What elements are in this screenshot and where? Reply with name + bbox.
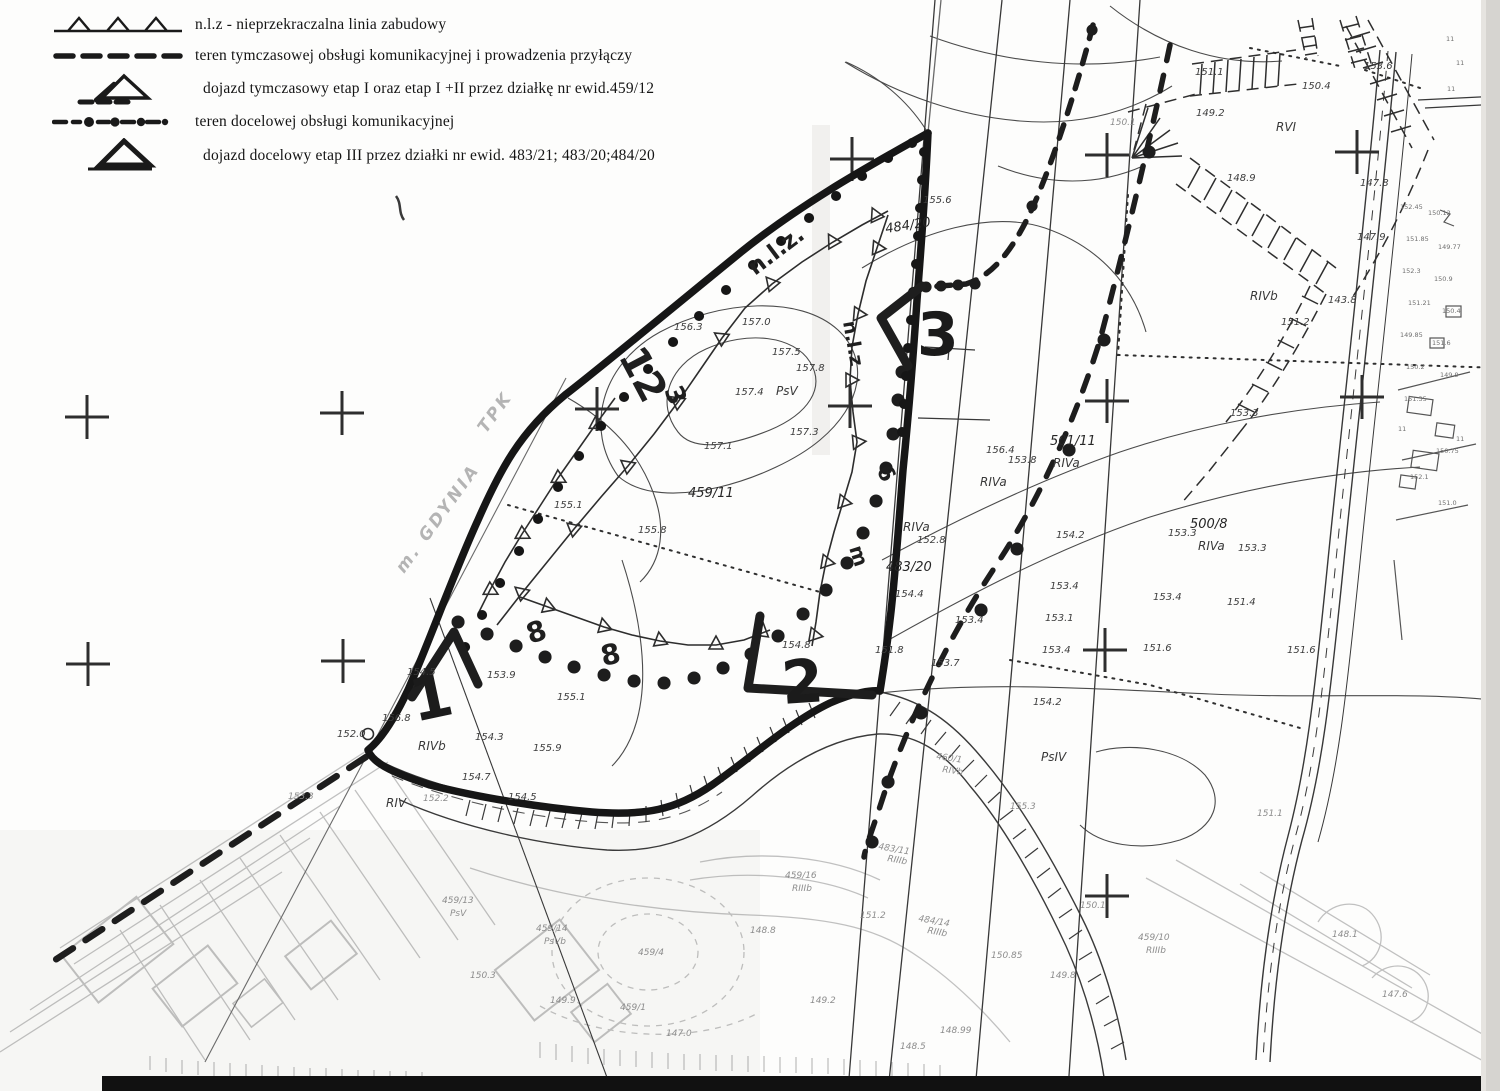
map-label: 151.6 (1432, 339, 1451, 347)
map-label: 157.5 (772, 347, 801, 358)
map-label: 154.8 (782, 640, 811, 651)
legend-item-label: dojazd docelowy etap III przez działki n… (203, 147, 655, 165)
map-label: 152.2 (423, 794, 449, 804)
map-label: 483/20 (886, 560, 932, 575)
map-label: 152.1 (1410, 473, 1429, 481)
map-label: 150.9 (1434, 275, 1453, 283)
map-label: 157.4 (735, 387, 764, 398)
map-label: 2 (779, 646, 826, 719)
map-label: 151.21 (1408, 299, 1431, 307)
map-label: 154.4 (895, 589, 924, 600)
map-label: 153.4 (1050, 581, 1079, 592)
map-label: 154.5 (508, 792, 537, 803)
map-label: 155.3 (1010, 802, 1036, 812)
map-label: 155.1 (557, 692, 586, 703)
map-label: 152.45 (1400, 203, 1423, 211)
map-label: 153.3 (1168, 528, 1197, 539)
map-label: 149.9 (1440, 371, 1459, 379)
legend-item-nlz: n.l.z - nieprzekraczalna linia zabudowy (52, 10, 732, 40)
map-label: 154.2 (1056, 530, 1085, 541)
nlz-line-symbol-icon (52, 10, 187, 40)
map-label: 148.5 (900, 1042, 926, 1052)
map-label: 156.3 (674, 322, 703, 333)
map-label: 151.35 (1404, 395, 1427, 403)
map-label: 11 (1456, 435, 1464, 443)
map-label: 155.6 (923, 195, 952, 206)
legend-item-label: dojazd tymczasowy etap I oraz etap I +II… (203, 80, 654, 98)
map-label: 149.2 (810, 996, 836, 1006)
map-label: 149.77 (1438, 243, 1461, 251)
map-label: RIVa (903, 520, 930, 534)
map-label: PsIV (1041, 750, 1067, 764)
map-label: 153.3 (288, 792, 314, 802)
map-label: 150.12 (1428, 209, 1451, 217)
legend-item-teren-docelowej: teren docelowej obsługi komunikacyjnej (52, 107, 732, 137)
legend-item-teren-tymczasowej: teren tymczasowej obsługi komunikacyjnej… (52, 41, 732, 71)
map-label: 153.4 (955, 615, 984, 626)
map-label: 153.7 (931, 658, 960, 669)
legend-item-label: n.l.z - nieprzekraczalna linia zabudowy (195, 16, 446, 34)
map-label: 148.99 (940, 1026, 972, 1036)
map-label: 153.3 (1238, 543, 1267, 554)
map-label: 147.0 (666, 1029, 692, 1039)
legend-item-label: teren tymczasowej obsługi komunikacyjnej… (195, 47, 632, 65)
map-label: 153.1 (1045, 613, 1074, 624)
map-label: 11 (1398, 425, 1406, 433)
map-label: PsVb (544, 937, 566, 947)
map-label: 11 (1456, 59, 1464, 67)
map-label: 157.1 (704, 441, 733, 452)
map-label: 157.3 (790, 427, 819, 438)
legend-item-dojazd-docelowy: dojazd docelowy etap III przez działki n… (52, 138, 732, 174)
map-legend: n.l.z - nieprzekraczalna linia zabudowy … (52, 10, 732, 175)
map-label: PsV (450, 909, 467, 919)
map-label: 153.9 (487, 670, 516, 681)
map-label: 153.4 (1042, 645, 1071, 656)
map-label: 151.6 (1143, 643, 1172, 654)
map-label: 153.4 (1153, 592, 1182, 603)
map-label: RIVb (1250, 289, 1278, 303)
map-label: PsV (776, 384, 798, 398)
map-label: 150.4 (1302, 81, 1331, 92)
map-label: 152.3 (1402, 267, 1421, 275)
map-label: 143.8 (1328, 295, 1357, 306)
map-label: 459/1 (620, 1003, 646, 1013)
map-label: 11 (1447, 85, 1455, 93)
map-label: 157.0 (742, 317, 771, 328)
map-label: 148.1 (1332, 930, 1358, 940)
map-label: 153.3 (1230, 408, 1259, 419)
temporary-access-symbol-icon (52, 72, 187, 106)
map-label: 155.9 (533, 743, 562, 754)
map-label: RIVb (418, 739, 446, 753)
map-label: 148.8 (750, 926, 776, 936)
map-label: 150.75 (1436, 447, 1459, 455)
map-label: 459/14 (536, 924, 568, 934)
map-label: 151.1 (1195, 67, 1224, 78)
map-label: 148.9 (1227, 173, 1256, 184)
map-label: 11 (1446, 35, 1454, 43)
map-label: RIV (386, 796, 407, 810)
map-label: 151.2 (860, 911, 886, 921)
map-label: 459/10 (1138, 933, 1170, 943)
map-label: 151.85 (1406, 235, 1429, 243)
map-label: RIVa (1198, 539, 1225, 553)
map-label: 150.85 (991, 951, 1023, 961)
map-label: 459/4 (638, 948, 664, 958)
map-label: 147.8 (1360, 178, 1389, 189)
map-label: 153.6 (1364, 61, 1393, 72)
map-label: 501/11 (1050, 434, 1096, 449)
map-label: 153.8 (1008, 455, 1037, 466)
map-label: 151.0 (1438, 499, 1457, 507)
map-label: 155.8 (638, 525, 667, 536)
map-label: RVI (1276, 120, 1297, 134)
map-label: 155.1 (554, 500, 583, 511)
map-label: 149.85 (1400, 331, 1423, 339)
map-label: RIVa (980, 475, 1007, 489)
map-label: 157.8 (796, 363, 825, 374)
map-label: 150.2 (1406, 363, 1425, 371)
map-label: 151.1 (1257, 809, 1283, 819)
map-label: RIIIb (792, 884, 812, 894)
target-access-symbol-icon (52, 138, 187, 174)
map-label: 3 (917, 300, 959, 370)
dashed-line-symbol-icon (52, 41, 187, 71)
map-label: 151.4 (1227, 597, 1256, 608)
map-label: 147.9 (1357, 232, 1386, 243)
map-label: RIIIb (1146, 946, 1166, 956)
map-label: 154.2 (1033, 697, 1062, 708)
scanned-map-page: n.l.z - nieprzekraczalna linia zabudowy … (0, 0, 1500, 1091)
map-label: 150.1 (1110, 118, 1136, 128)
map-label: 151.8 (875, 645, 904, 656)
map-label: 150.3 (470, 971, 496, 981)
legend-item-dojazd-tymczasowy: dojazd tymczasowy etap I oraz etap I +II… (52, 72, 732, 106)
map-label: 149.9 (550, 996, 576, 1006)
map-label: 154.5 (407, 667, 436, 678)
map-label: 149.8 (1050, 971, 1076, 981)
map-label: 156.8 (382, 713, 411, 724)
map-label: 150.1 (1080, 901, 1106, 911)
map-label: 147.6 (1382, 990, 1408, 1000)
map-label: 459/16 (785, 871, 817, 881)
dash-dot-line-symbol-icon (52, 107, 187, 137)
map-label: 152.0 (337, 729, 366, 740)
map-label: 154.3 (475, 732, 504, 743)
map-label: 149.2 (1196, 108, 1225, 119)
map-label: 152.8 (917, 535, 946, 546)
map-label: RIVa (1053, 456, 1080, 470)
map-label: 154.7 (462, 772, 491, 783)
map-label: 151.6 (1287, 645, 1316, 656)
map-label: 150.4 (1442, 307, 1461, 315)
legend-item-label: teren docelowej obsługi komunikacyjnej (195, 113, 454, 131)
map-label: 459/11 (688, 486, 734, 501)
map-label: 459/13 (442, 896, 474, 906)
map-label: 151.2 (1281, 317, 1310, 328)
